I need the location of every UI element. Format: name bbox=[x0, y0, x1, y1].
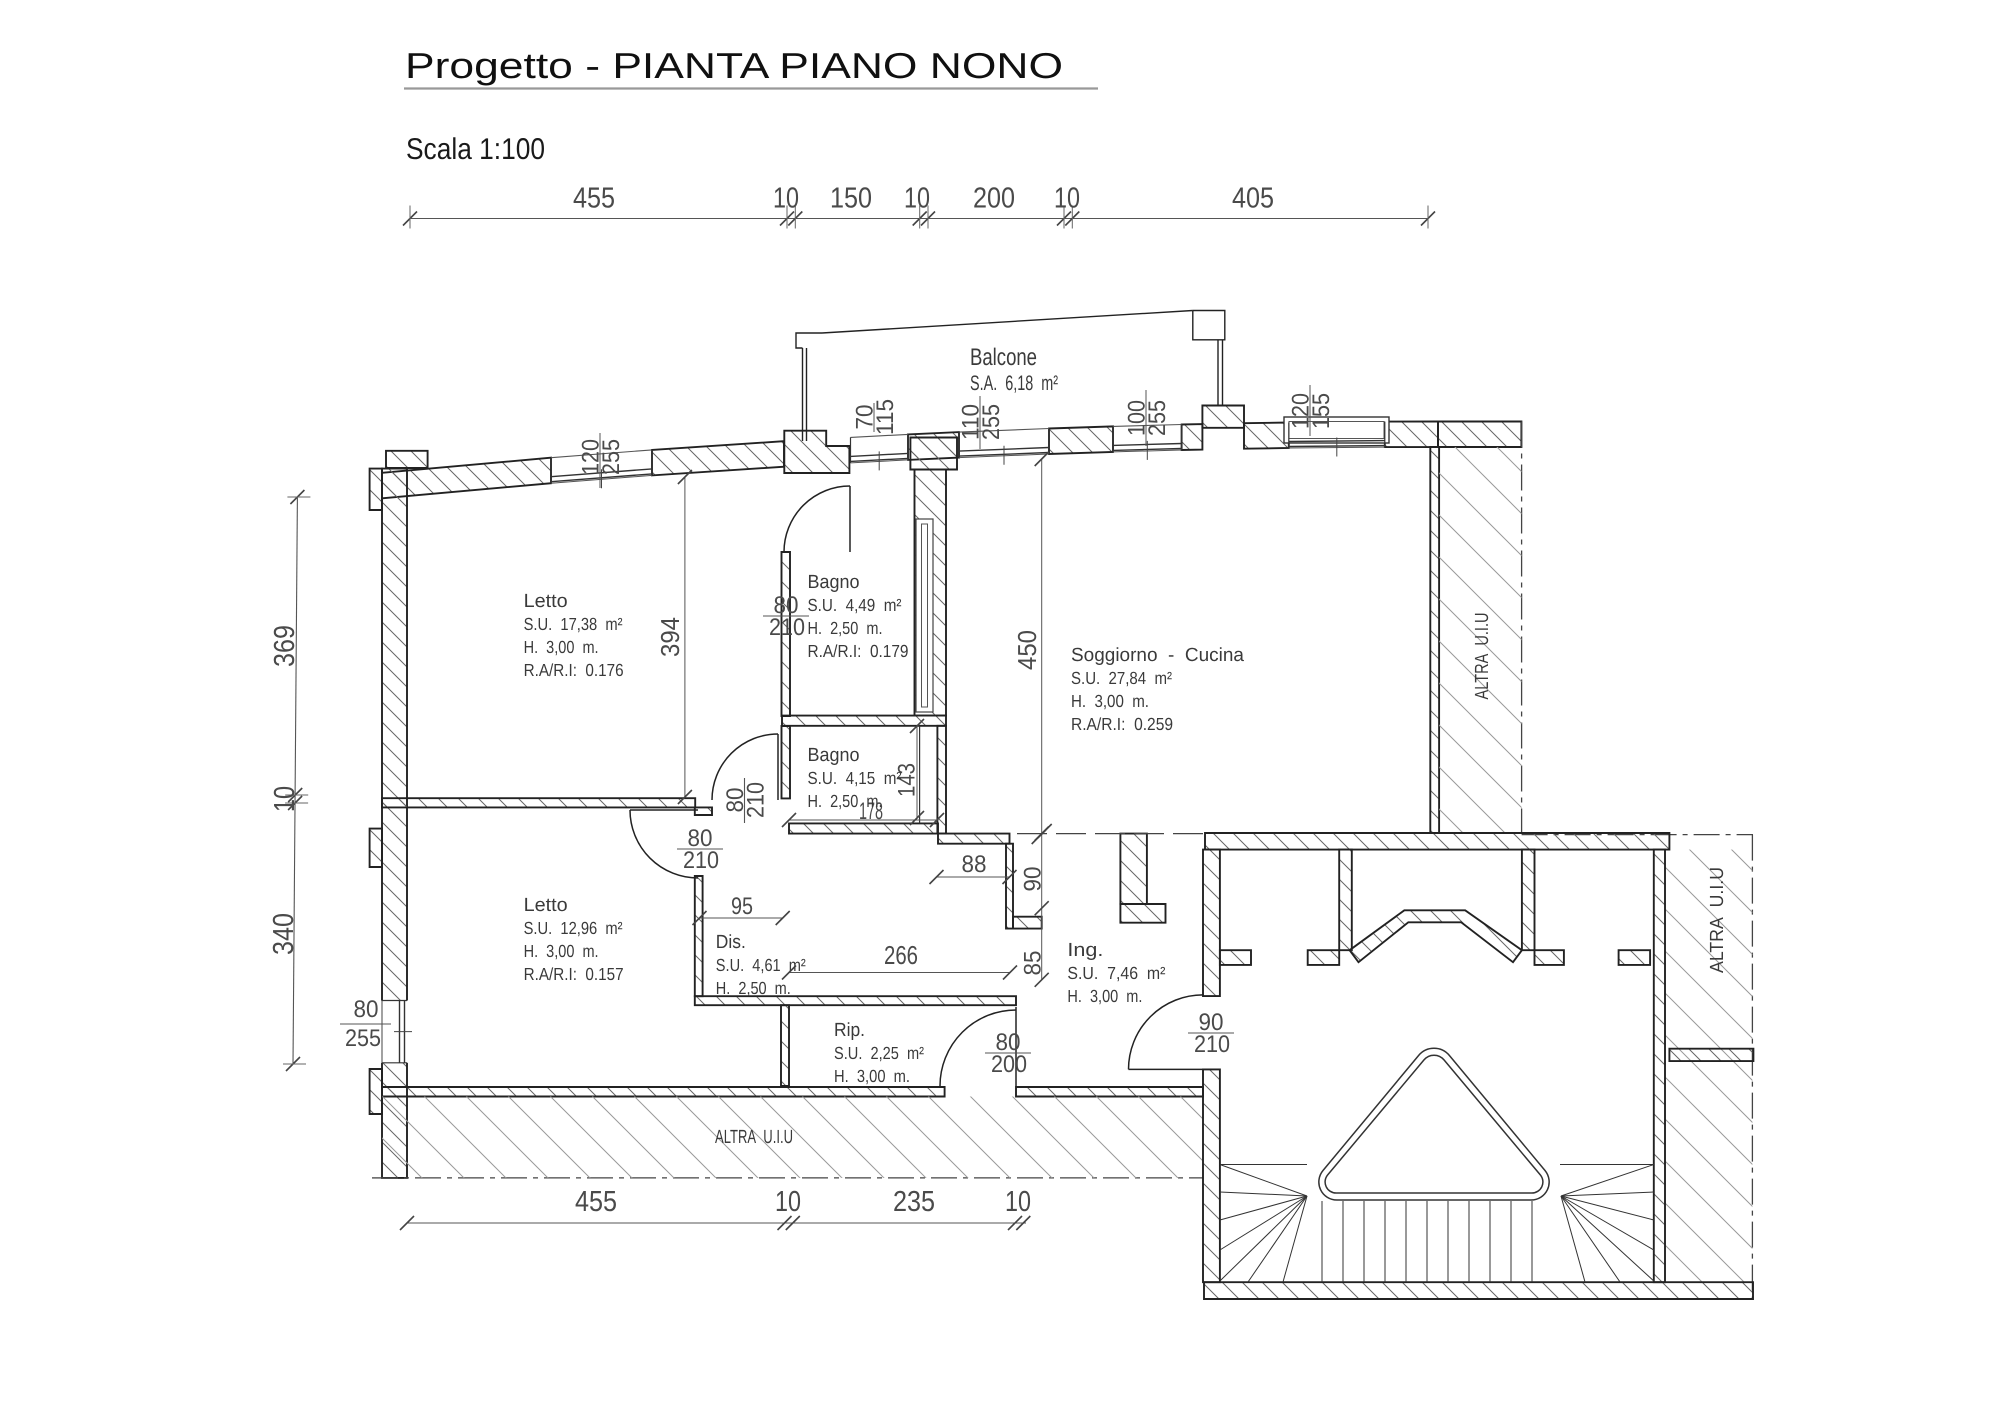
svg-text:S.U. 4,49 m²: S.U. 4,49 m² bbox=[808, 595, 902, 615]
svg-text:210: 210 bbox=[743, 782, 770, 818]
svg-text:10: 10 bbox=[775, 1186, 801, 1218]
svg-text:H. 2,50 m.: H. 2,50 m. bbox=[808, 618, 883, 638]
svg-text:210: 210 bbox=[1194, 1031, 1230, 1058]
svg-text:115: 115 bbox=[872, 399, 899, 435]
svg-text:90: 90 bbox=[1020, 867, 1047, 892]
svg-text:95: 95 bbox=[731, 893, 753, 920]
svg-text:10: 10 bbox=[773, 183, 799, 215]
svg-text:ALTRA U.I.U: ALTRA U.I.U bbox=[1472, 613, 1493, 700]
svg-text:Bagno: Bagno bbox=[808, 572, 860, 593]
svg-text:H. 2,50 m.: H. 2,50 m. bbox=[716, 978, 791, 998]
svg-text:255: 255 bbox=[1144, 400, 1171, 436]
svg-text:S.U. 4,15 m²: S.U. 4,15 m² bbox=[808, 768, 902, 788]
svg-text:Scala 1:100: Scala 1:100 bbox=[406, 133, 545, 166]
svg-text:S.U. 17,38 m²: S.U. 17,38 m² bbox=[524, 614, 623, 634]
svg-text:H. 2,50 m.: H. 2,50 m. bbox=[808, 791, 883, 811]
svg-text:Rip.: Rip. bbox=[834, 1020, 865, 1041]
svg-text:Ing.: Ing. bbox=[1067, 940, 1103, 961]
svg-text:R.A/R.I: 0.179: R.A/R.I: 0.179 bbox=[808, 641, 909, 661]
svg-text:S.U. 2,25 m²: S.U. 2,25 m² bbox=[834, 1043, 924, 1063]
svg-text:10: 10 bbox=[1054, 183, 1080, 215]
svg-text:H. 3,00 m.: H. 3,00 m. bbox=[524, 637, 599, 657]
svg-text:405: 405 bbox=[1232, 183, 1274, 215]
svg-text:455: 455 bbox=[573, 183, 615, 215]
svg-text:88: 88 bbox=[962, 851, 987, 878]
svg-text:255: 255 bbox=[978, 404, 1005, 440]
svg-text:S.U. 4,61 m²: S.U. 4,61 m² bbox=[716, 955, 806, 975]
svg-text:369: 369 bbox=[269, 625, 301, 667]
svg-text:340: 340 bbox=[268, 913, 300, 955]
svg-text:R.A/R.I: 0.157: R.A/R.I: 0.157 bbox=[524, 964, 624, 984]
svg-text:Dis.: Dis. bbox=[716, 932, 746, 953]
svg-text:H. 3,00 m.: H. 3,00 m. bbox=[1071, 691, 1149, 711]
svg-text:80: 80 bbox=[354, 996, 379, 1023]
svg-text:S.U. 12,96 m²: S.U. 12,96 m² bbox=[524, 918, 623, 938]
svg-text:10: 10 bbox=[1005, 1186, 1031, 1218]
svg-text:150: 150 bbox=[830, 183, 872, 215]
svg-text:235: 235 bbox=[893, 1186, 935, 1218]
svg-text:H. 3,00 m.: H. 3,00 m. bbox=[524, 941, 599, 961]
svg-text:Soggiorno - Cucina: Soggiorno - Cucina bbox=[1071, 645, 1244, 666]
svg-text:S.U. 27,84 m²: S.U. 27,84 m² bbox=[1071, 668, 1172, 688]
svg-text:455: 455 bbox=[575, 1186, 617, 1218]
svg-text:394: 394 bbox=[655, 617, 685, 657]
svg-text:210: 210 bbox=[683, 847, 719, 874]
svg-text:R.A/R.I: 0.176: R.A/R.I: 0.176 bbox=[524, 660, 624, 680]
svg-text:85: 85 bbox=[1020, 951, 1047, 976]
svg-text:H. 3,00 m.: H. 3,00 m. bbox=[1067, 986, 1142, 1006]
svg-text:Letto: Letto bbox=[524, 895, 568, 916]
svg-text:155: 155 bbox=[1308, 393, 1335, 429]
svg-text:255: 255 bbox=[598, 439, 625, 475]
svg-text:R.A/R.I: 0.259: R.A/R.I: 0.259 bbox=[1071, 714, 1173, 734]
svg-text:S.U. 7,46 m²: S.U. 7,46 m² bbox=[1067, 963, 1165, 983]
svg-text:255: 255 bbox=[345, 1025, 381, 1052]
svg-text:200: 200 bbox=[973, 183, 1015, 215]
svg-text:200: 200 bbox=[991, 1051, 1027, 1078]
svg-text:210: 210 bbox=[769, 614, 805, 641]
svg-text:H. 3,00 m.: H. 3,00 m. bbox=[834, 1066, 910, 1086]
svg-text:266: 266 bbox=[884, 940, 918, 970]
svg-text:Letto: Letto bbox=[524, 591, 568, 612]
svg-text:10: 10 bbox=[269, 786, 301, 812]
svg-text:ALTRA U.I.U: ALTRA U.I.U bbox=[715, 1127, 793, 1148]
svg-text:Progetto - PIANTA PIANO NONO: Progetto - PIANTA PIANO NONO bbox=[405, 45, 1063, 86]
svg-text:ALTRA U.I.U: ALTRA U.I.U bbox=[1707, 867, 1728, 973]
svg-text:Balcone: Balcone bbox=[970, 344, 1037, 371]
svg-text:450: 450 bbox=[1012, 630, 1042, 670]
svg-text:Bagno: Bagno bbox=[808, 745, 860, 766]
svg-text:S.A. 6,18 m²: S.A. 6,18 m² bbox=[970, 372, 1058, 395]
svg-text:10: 10 bbox=[904, 183, 930, 215]
